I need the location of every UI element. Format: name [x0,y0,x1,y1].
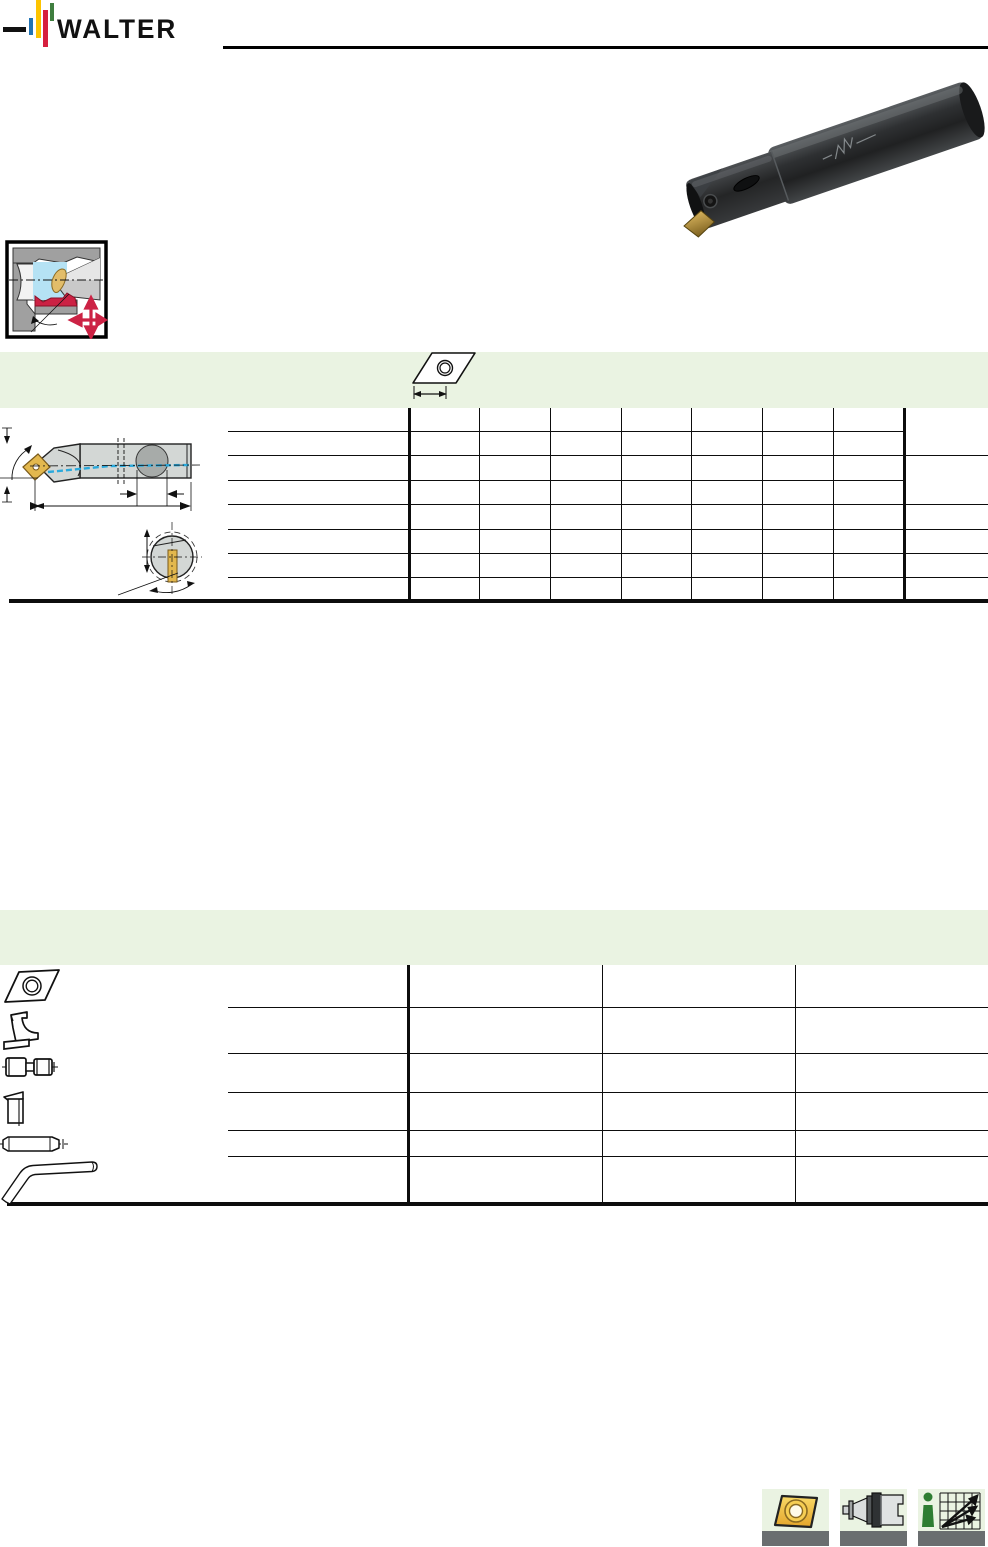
insert-photo-icon [762,1489,829,1546]
section2-header-band [0,910,988,965]
logo-red-bar [43,10,48,47]
catalog-page: WALTER [0,0,988,1547]
insert-icon [2,966,62,1006]
logo-dash [3,27,26,32]
shim-icon [3,1090,27,1127]
tile-caption-bar [840,1531,907,1546]
tile-caption-bar [918,1531,985,1546]
internal-turning-pictogram [5,240,108,339]
tool-adapter-icon [840,1489,907,1546]
table1-bottom-rule [9,599,988,603]
clamping-screw-icon [2,1055,58,1079]
logo-blue-bar [29,18,33,35]
shim-pin-icon [0,1133,68,1155]
boring-bar-dimension-drawing [0,410,235,598]
table2-bottom-rule [7,1202,988,1206]
tile-caption-bar [762,1531,829,1546]
info-i-glyph [922,1493,934,1528]
allen-key-icon [0,1156,100,1204]
clamp-icon [2,1008,42,1052]
product-photo [675,58,988,240]
insert-top-view-icon [408,350,488,402]
info-cutting-data-icon [918,1489,985,1546]
boring-bar-photo [675,79,988,240]
logo-yellow-bar [36,0,41,38]
logo-wordmark: WALTER [57,14,177,45]
header-rule [223,46,988,49]
section1-header-band [0,352,988,408]
logo-green-bar [50,3,55,21]
